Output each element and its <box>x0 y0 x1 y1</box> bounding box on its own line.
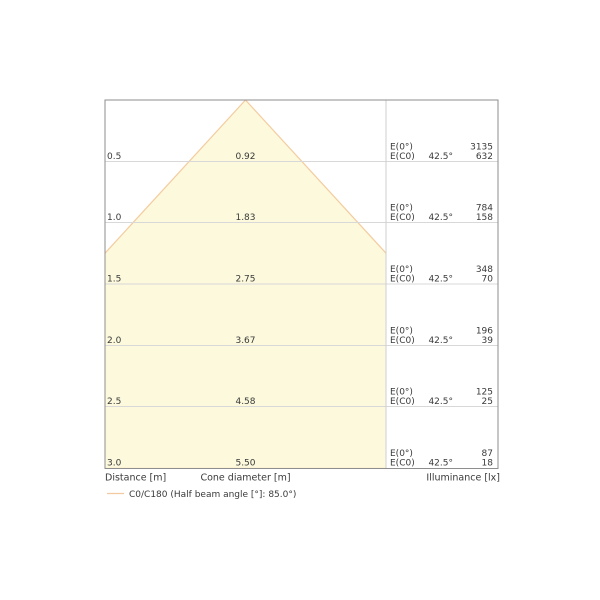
ec0-label: E(C0) <box>390 397 415 407</box>
e0-label: E(0°) <box>390 142 413 152</box>
ec0-value: 70 <box>482 275 494 285</box>
half-angle-value: 42.5° <box>428 213 453 223</box>
ec0-value: 632 <box>476 152 493 162</box>
e0-label: E(0°) <box>390 265 413 275</box>
e0-label: E(0°) <box>390 326 413 336</box>
ec0-value: 39 <box>482 336 494 346</box>
half-angle-value: 42.5° <box>428 459 453 469</box>
e0-value: 784 <box>476 204 493 214</box>
cone-diameter-value: 0.92 <box>235 152 255 162</box>
e0-label: E(0°) <box>390 388 413 398</box>
distance-axis-label: Distance [m] <box>105 473 166 484</box>
cone-diagram-page: 0.5 0.92 E(0°) E(C0) 42.5° 3135 632 1.0 … <box>0 0 600 600</box>
cone-diameter-value: 3.67 <box>235 336 255 346</box>
ec0-label: E(C0) <box>390 152 415 162</box>
e0-label: E(0°) <box>390 204 413 214</box>
cone-diameter-value: 5.50 <box>235 459 255 469</box>
e0-value: 125 <box>476 388 493 398</box>
distance-label: 2.5 <box>107 397 121 407</box>
ec0-label: E(C0) <box>390 459 415 469</box>
legend: C0/C180 (Half beam angle [°]: 85.0°) <box>107 490 296 500</box>
ec0-label: E(C0) <box>390 213 415 223</box>
e0-value: 87 <box>482 449 493 459</box>
ec0-value: 25 <box>482 397 493 407</box>
e0-value: 348 <box>476 265 493 275</box>
cone-diagram-canvas: 0.5 0.92 E(0°) E(C0) 42.5° 3135 632 1.0 … <box>0 0 600 600</box>
e0-value: 3135 <box>470 142 493 152</box>
half-angle-value: 42.5° <box>428 336 453 346</box>
distance-label: 2.0 <box>107 336 122 346</box>
ec0-value: 18 <box>482 459 494 469</box>
cone-diameter-value: 4.58 <box>235 397 255 407</box>
distance-label: 1.5 <box>107 275 121 285</box>
distance-label: 3.0 <box>107 459 122 469</box>
ec0-value: 158 <box>476 213 493 223</box>
half-angle-value: 42.5° <box>428 152 453 162</box>
cone-diameter-value: 2.75 <box>235 275 255 285</box>
ec0-label: E(C0) <box>390 275 415 285</box>
half-angle-value: 42.5° <box>428 397 453 407</box>
cone-diameter-value: 1.83 <box>235 213 255 223</box>
illuminance-axis-label: Illuminance [lx] <box>426 473 500 484</box>
distance-label: 1.0 <box>107 213 122 223</box>
ec0-label: E(C0) <box>390 336 415 346</box>
cone-diameter-axis-label: Cone diameter [m] <box>200 473 290 484</box>
e0-value: 196 <box>476 326 493 336</box>
legend-label: C0/C180 (Half beam angle [°]: 85.0°) <box>129 490 296 500</box>
half-angle-value: 42.5° <box>428 275 453 285</box>
distance-label: 0.5 <box>107 152 121 162</box>
e0-label: E(0°) <box>390 449 413 459</box>
